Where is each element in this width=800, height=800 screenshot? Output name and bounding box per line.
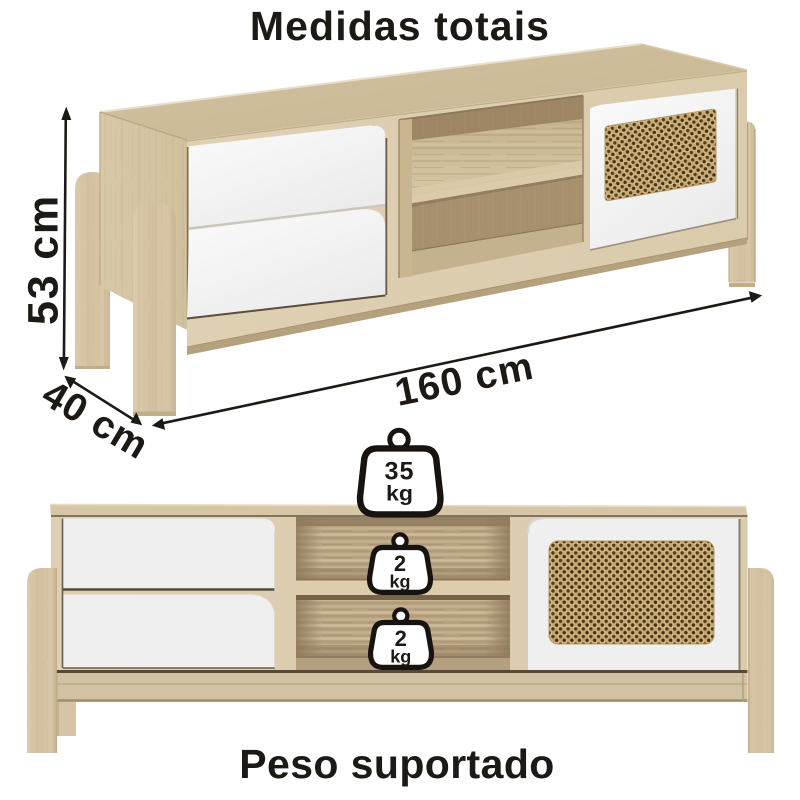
svg-text:kg: kg: [390, 647, 411, 667]
svg-text:Peso suportado: Peso suportado: [239, 741, 554, 787]
svg-text:35: 35: [385, 458, 415, 486]
svg-text:kg: kg: [386, 483, 413, 506]
svg-text:53 cm: 53 cm: [20, 194, 68, 325]
svg-text:Medidas totais: Medidas totais: [250, 3, 550, 49]
svg-text:kg: kg: [390, 572, 411, 592]
